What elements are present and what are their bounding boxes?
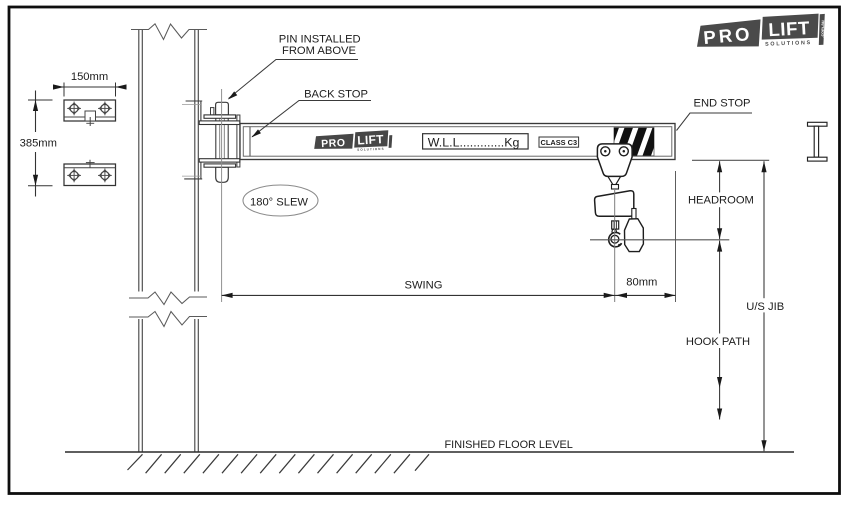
svg-text:HOOK PATH: HOOK PATH: [686, 336, 750, 348]
svg-text:END STOP: END STOP: [694, 98, 751, 110]
svg-text:PRO: PRO: [321, 137, 346, 150]
svg-text:385mm: 385mm: [20, 137, 57, 149]
svg-text:PRO: PRO: [703, 23, 754, 48]
svg-text:PIN INSTALLED: PIN INSTALLED: [279, 34, 361, 46]
svg-text:80mm: 80mm: [626, 277, 657, 289]
svg-text:BACK STOP: BACK STOP: [304, 88, 368, 100]
svg-text:SWING: SWING: [405, 280, 443, 292]
svg-text:CLASS C3: CLASS C3: [541, 138, 578, 147]
svg-text:LIFT: LIFT: [768, 17, 811, 40]
svg-text:LIFT: LIFT: [357, 132, 385, 147]
svg-text:HEADROOM: HEADROOM: [688, 195, 754, 207]
svg-text:W.L.L.............Kg: W.L.L.............Kg: [428, 135, 520, 149]
svg-text:FINISHED FLOOR LEVEL: FINISHED FLOOR LEVEL: [445, 439, 573, 451]
svg-text:.com.au: .com.au: [820, 20, 825, 38]
svg-text:FROM ABOVE: FROM ABOVE: [282, 45, 356, 57]
svg-text:150mm: 150mm: [71, 71, 108, 83]
svg-text:U/S JIB: U/S JIB: [746, 301, 784, 313]
svg-text:180° SLEW: 180° SLEW: [250, 197, 308, 209]
